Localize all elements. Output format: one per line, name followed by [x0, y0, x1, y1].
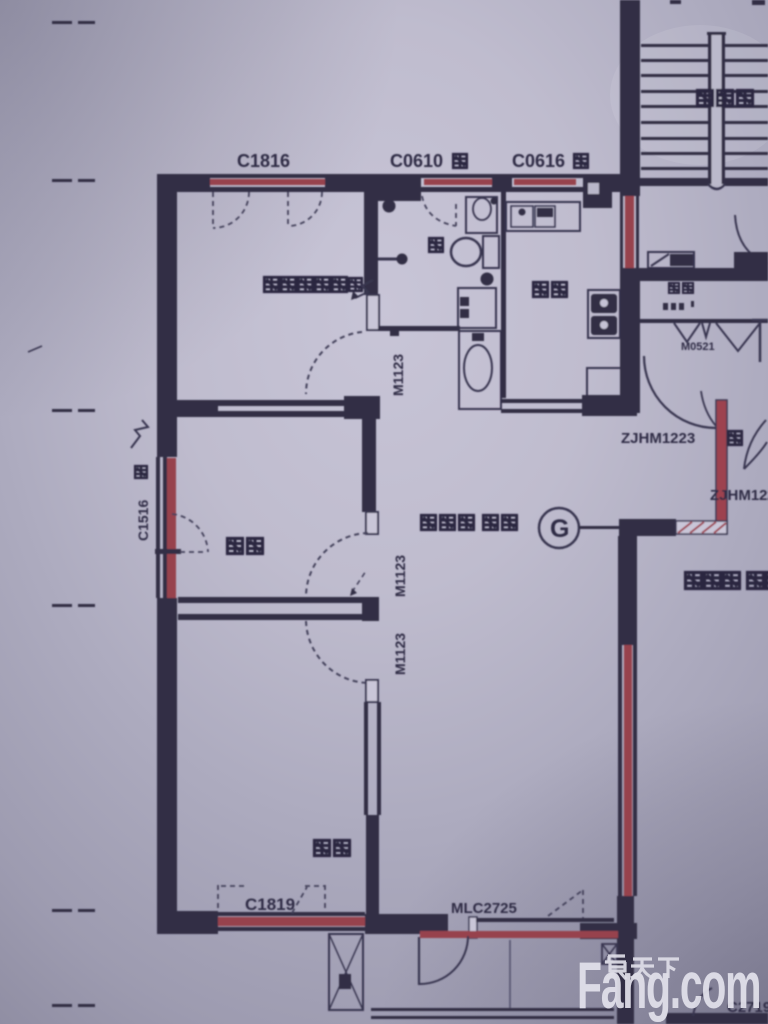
svg-text:MLC2725: MLC2725 [451, 900, 517, 917]
svg-text:C1819: C1819 [245, 895, 295, 914]
svg-text:M0521: M0521 [681, 341, 715, 353]
svg-text:M1123: M1123 [392, 633, 408, 675]
svg-text:C1816: C1816 [237, 151, 290, 171]
svg-text:C0616: C0616 [512, 151, 565, 171]
svg-text:C1516: C1516 [135, 500, 151, 541]
svg-text:ZJHM1223: ZJHM1223 [710, 487, 768, 504]
svg-text:M1123: M1123 [390, 354, 406, 396]
svg-text:C0610: C0610 [390, 151, 443, 171]
svg-text:M1123: M1123 [392, 555, 408, 597]
svg-text:ZJHM1223: ZJHM1223 [621, 430, 695, 447]
svg-text:G: G [550, 515, 569, 543]
